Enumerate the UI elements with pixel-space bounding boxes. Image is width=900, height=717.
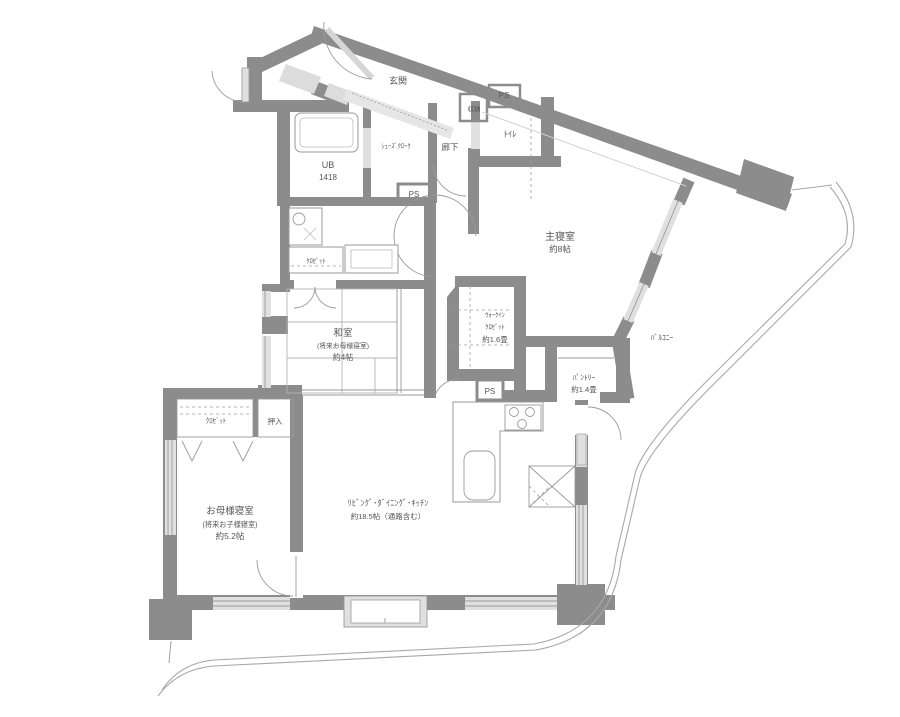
toilet-label: ﾄｲﾚ — [504, 129, 517, 139]
master-bedroom-label: 主寝室 — [545, 230, 575, 243]
unit-bath-size: 1418 — [319, 173, 337, 182]
pantry-label: ﾊﾟﾝﾄﾘｰ — [573, 373, 596, 382]
floor-plan-canvas: 玄関 PS 収納 ﾄｲﾚ ｼｭｰｽﾞｸﾛｰｸ 廊下 UB 1418 PS 主寝室… — [0, 0, 900, 717]
corridor-ldk-door-arc — [434, 379, 460, 398]
porch-door-arc — [212, 71, 242, 102]
wic-size: 約1.6畳 — [482, 334, 508, 344]
wic-label-1: ｳｫｰｸｲﾝ — [485, 311, 505, 319]
hallway-door-arc — [433, 163, 466, 196]
ldk-size: 約18.5帖（通路含む） — [351, 511, 426, 521]
mother-bedroom-sublabel: (将来お子様寝室) — [202, 520, 257, 529]
walls — [149, 26, 794, 640]
ps-mid-label: PS — [409, 190, 420, 199]
master-bedroom-size: 約8帖 — [549, 244, 571, 254]
balcony-label: ﾊﾞﾙｺﾆｰ — [651, 333, 674, 342]
mother-bedroom-size: 約5.2帖 — [216, 531, 245, 541]
balcony-door-leaf — [577, 434, 586, 465]
mother-door-gap — [290, 552, 303, 598]
storage-label: 収納 — [468, 104, 481, 113]
room-labels: 玄関 PS 収納 ﾄｲﾚ ｼｭｰｽﾞｸﾛｰｸ 廊下 UB 1418 PS 主寝室… — [202, 75, 673, 541]
porch-step — [279, 64, 321, 94]
floor-plan-drawing: 玄関 PS 収納 ﾄｲﾚ ｼｭｰｽﾞｸﾛｰｸ 廊下 UB 1418 PS 主寝室… — [0, 0, 900, 717]
washer-pan — [289, 208, 322, 245]
oshiire-label: 押入 — [268, 416, 283, 426]
shoes-cloak-label: ｼｭｰｽﾞｸﾛｰｸ — [381, 142, 410, 150]
tatami-grid — [287, 289, 424, 395]
japanese-room-size: 約4帖 — [333, 352, 353, 362]
porch-door-leaf — [242, 68, 249, 102]
entrance-label: 玄関 — [389, 75, 407, 86]
balcony-railing — [158, 182, 854, 696]
japanese-room-double-door — [294, 287, 336, 308]
ps-bottom-label: PS — [485, 387, 496, 396]
mother-bedroom-label: お母様寝室 — [206, 505, 254, 517]
hanger-marks — [182, 441, 253, 461]
unit-bath-label: UB — [322, 160, 335, 170]
wic-label-2: ｸﾛｾﾞｯﾄ — [485, 323, 505, 331]
hallway-label: 廊下 — [441, 142, 459, 152]
vanity — [345, 245, 398, 273]
balcony-door-gap — [575, 405, 588, 435]
japanese-room-sublabel: (将来お母様寝室) — [317, 341, 369, 350]
bathtub — [295, 113, 358, 152]
japanese-room-label: 和室 — [333, 327, 352, 339]
ps-top-label: PS — [499, 91, 510, 100]
mother-closet-label: ｸﾛｾﾞｯﾄ — [206, 417, 226, 425]
pantry-size: 約1.4畳 — [571, 384, 597, 394]
washroom-closet-label: ｸﾛｾﾞｯﾄ — [306, 257, 326, 265]
entrance-step — [343, 89, 454, 139]
balcony-door-arc — [588, 407, 621, 440]
balcony-partition — [169, 641, 171, 663]
ldk-label: ﾘﾋﾞﾝｸﾞ･ﾀﾞｲﾆﾝｸﾞ･ｷｯﾁﾝ — [348, 498, 429, 508]
